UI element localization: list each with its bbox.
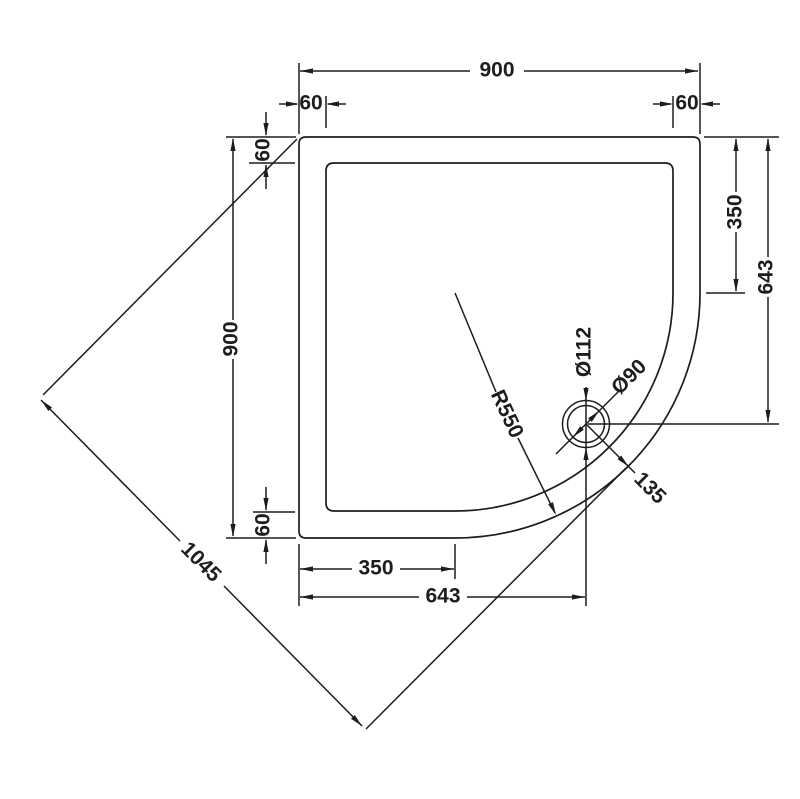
arrowhead <box>300 566 313 571</box>
arrowhead <box>263 539 268 552</box>
arrowhead <box>733 279 738 292</box>
dim-top-offset-right: 60 <box>653 92 720 129</box>
arrowhead <box>572 594 585 599</box>
dim-waste-outer-diameter-label: Ø112 <box>573 327 596 377</box>
dim-left-offset-bottom: 60 <box>252 487 296 564</box>
arrowhead <box>660 101 673 106</box>
arrowhead <box>548 502 556 515</box>
arrowhead <box>685 68 698 73</box>
dimension-line <box>224 586 362 726</box>
dim-corner-radius-label: R550 <box>486 386 528 441</box>
arrowhead <box>300 68 313 73</box>
dim-waste-inner-diameter-label: Ø90 <box>607 355 651 399</box>
arrowhead <box>733 138 738 151</box>
dim-bottom-waste-distance: 643 <box>300 585 585 608</box>
dim-corner-radius: R550 <box>455 293 556 515</box>
dim-left-height-label: 900 <box>220 321 243 356</box>
arrowhead <box>230 138 235 151</box>
dim-waste-outer-diameter: Ø112 <box>573 327 596 606</box>
arrowhead <box>583 447 588 460</box>
dim-right-straight-edge-label: 350 <box>724 194 747 229</box>
technical-drawing: 900 60 60 900 60 <box>0 0 800 799</box>
arrowhead <box>583 388 588 401</box>
arrowhead <box>765 138 770 151</box>
leader-line <box>518 438 555 513</box>
dimension-line <box>41 400 180 541</box>
dim-top-offset-left-label: 60 <box>299 92 322 115</box>
extension-line <box>43 139 297 395</box>
arrowhead <box>300 594 313 599</box>
dim-bottom-waste-distance-label: 643 <box>425 585 460 608</box>
dim-top-offset-left: 60 <box>279 92 346 129</box>
arrowhead <box>230 524 235 537</box>
arrowhead <box>286 101 299 106</box>
dim-left-height: 900 <box>220 137 297 538</box>
arrowhead <box>326 101 339 106</box>
arrowhead <box>263 498 268 511</box>
dim-waste-edge-distance-label: 135 <box>629 467 670 508</box>
dim-diagonal-width-label: 1045 <box>176 537 226 587</box>
arrowhead <box>700 101 713 106</box>
dim-diagonal-width: 1045 <box>41 139 626 729</box>
arrowhead <box>263 123 268 136</box>
dim-left-offset-bottom-label: 60 <box>252 513 275 536</box>
dim-left-offset-top: 60 <box>249 112 295 189</box>
leader-line <box>455 293 496 392</box>
dim-right-waste-distance-label: 643 <box>755 259 778 294</box>
drawing-canvas: 900 60 60 900 60 <box>0 0 800 799</box>
dim-top-width: 900 <box>299 59 700 135</box>
arrowhead <box>441 566 454 571</box>
arrowhead <box>765 410 770 423</box>
dim-bottom-straight-edge-label: 350 <box>358 557 393 580</box>
dim-left-offset-top-label: 60 <box>252 138 275 161</box>
dim-top-width-label: 900 <box>479 59 514 82</box>
dim-top-offset-right-label: 60 <box>675 92 698 115</box>
